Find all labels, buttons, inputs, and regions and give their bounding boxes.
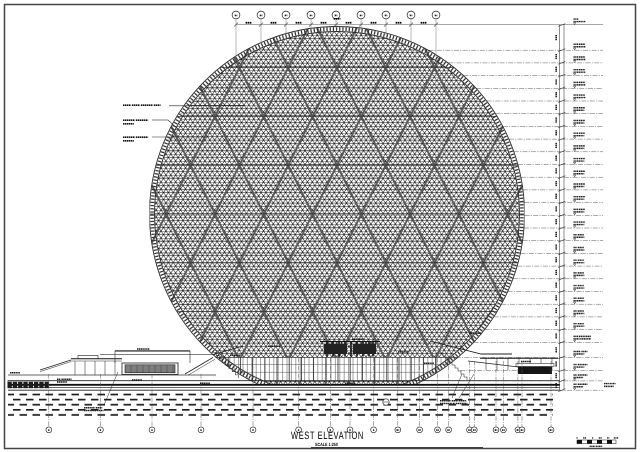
svg-text:WEST ELEVATION: WEST ELEVATION bbox=[291, 430, 364, 442]
svg-text:SCALE 1:250: SCALE 1:250 bbox=[315, 442, 338, 447]
